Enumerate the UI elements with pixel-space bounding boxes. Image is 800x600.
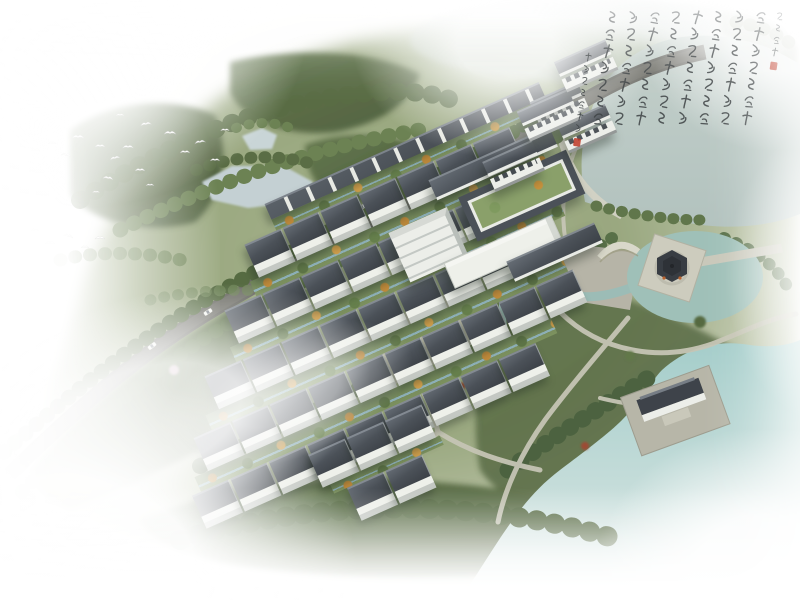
red-seal-stamp xyxy=(573,138,581,147)
red-seal-stamp xyxy=(769,61,777,70)
architectural-rendering xyxy=(0,0,800,600)
calligraphy-inscription xyxy=(515,0,785,243)
